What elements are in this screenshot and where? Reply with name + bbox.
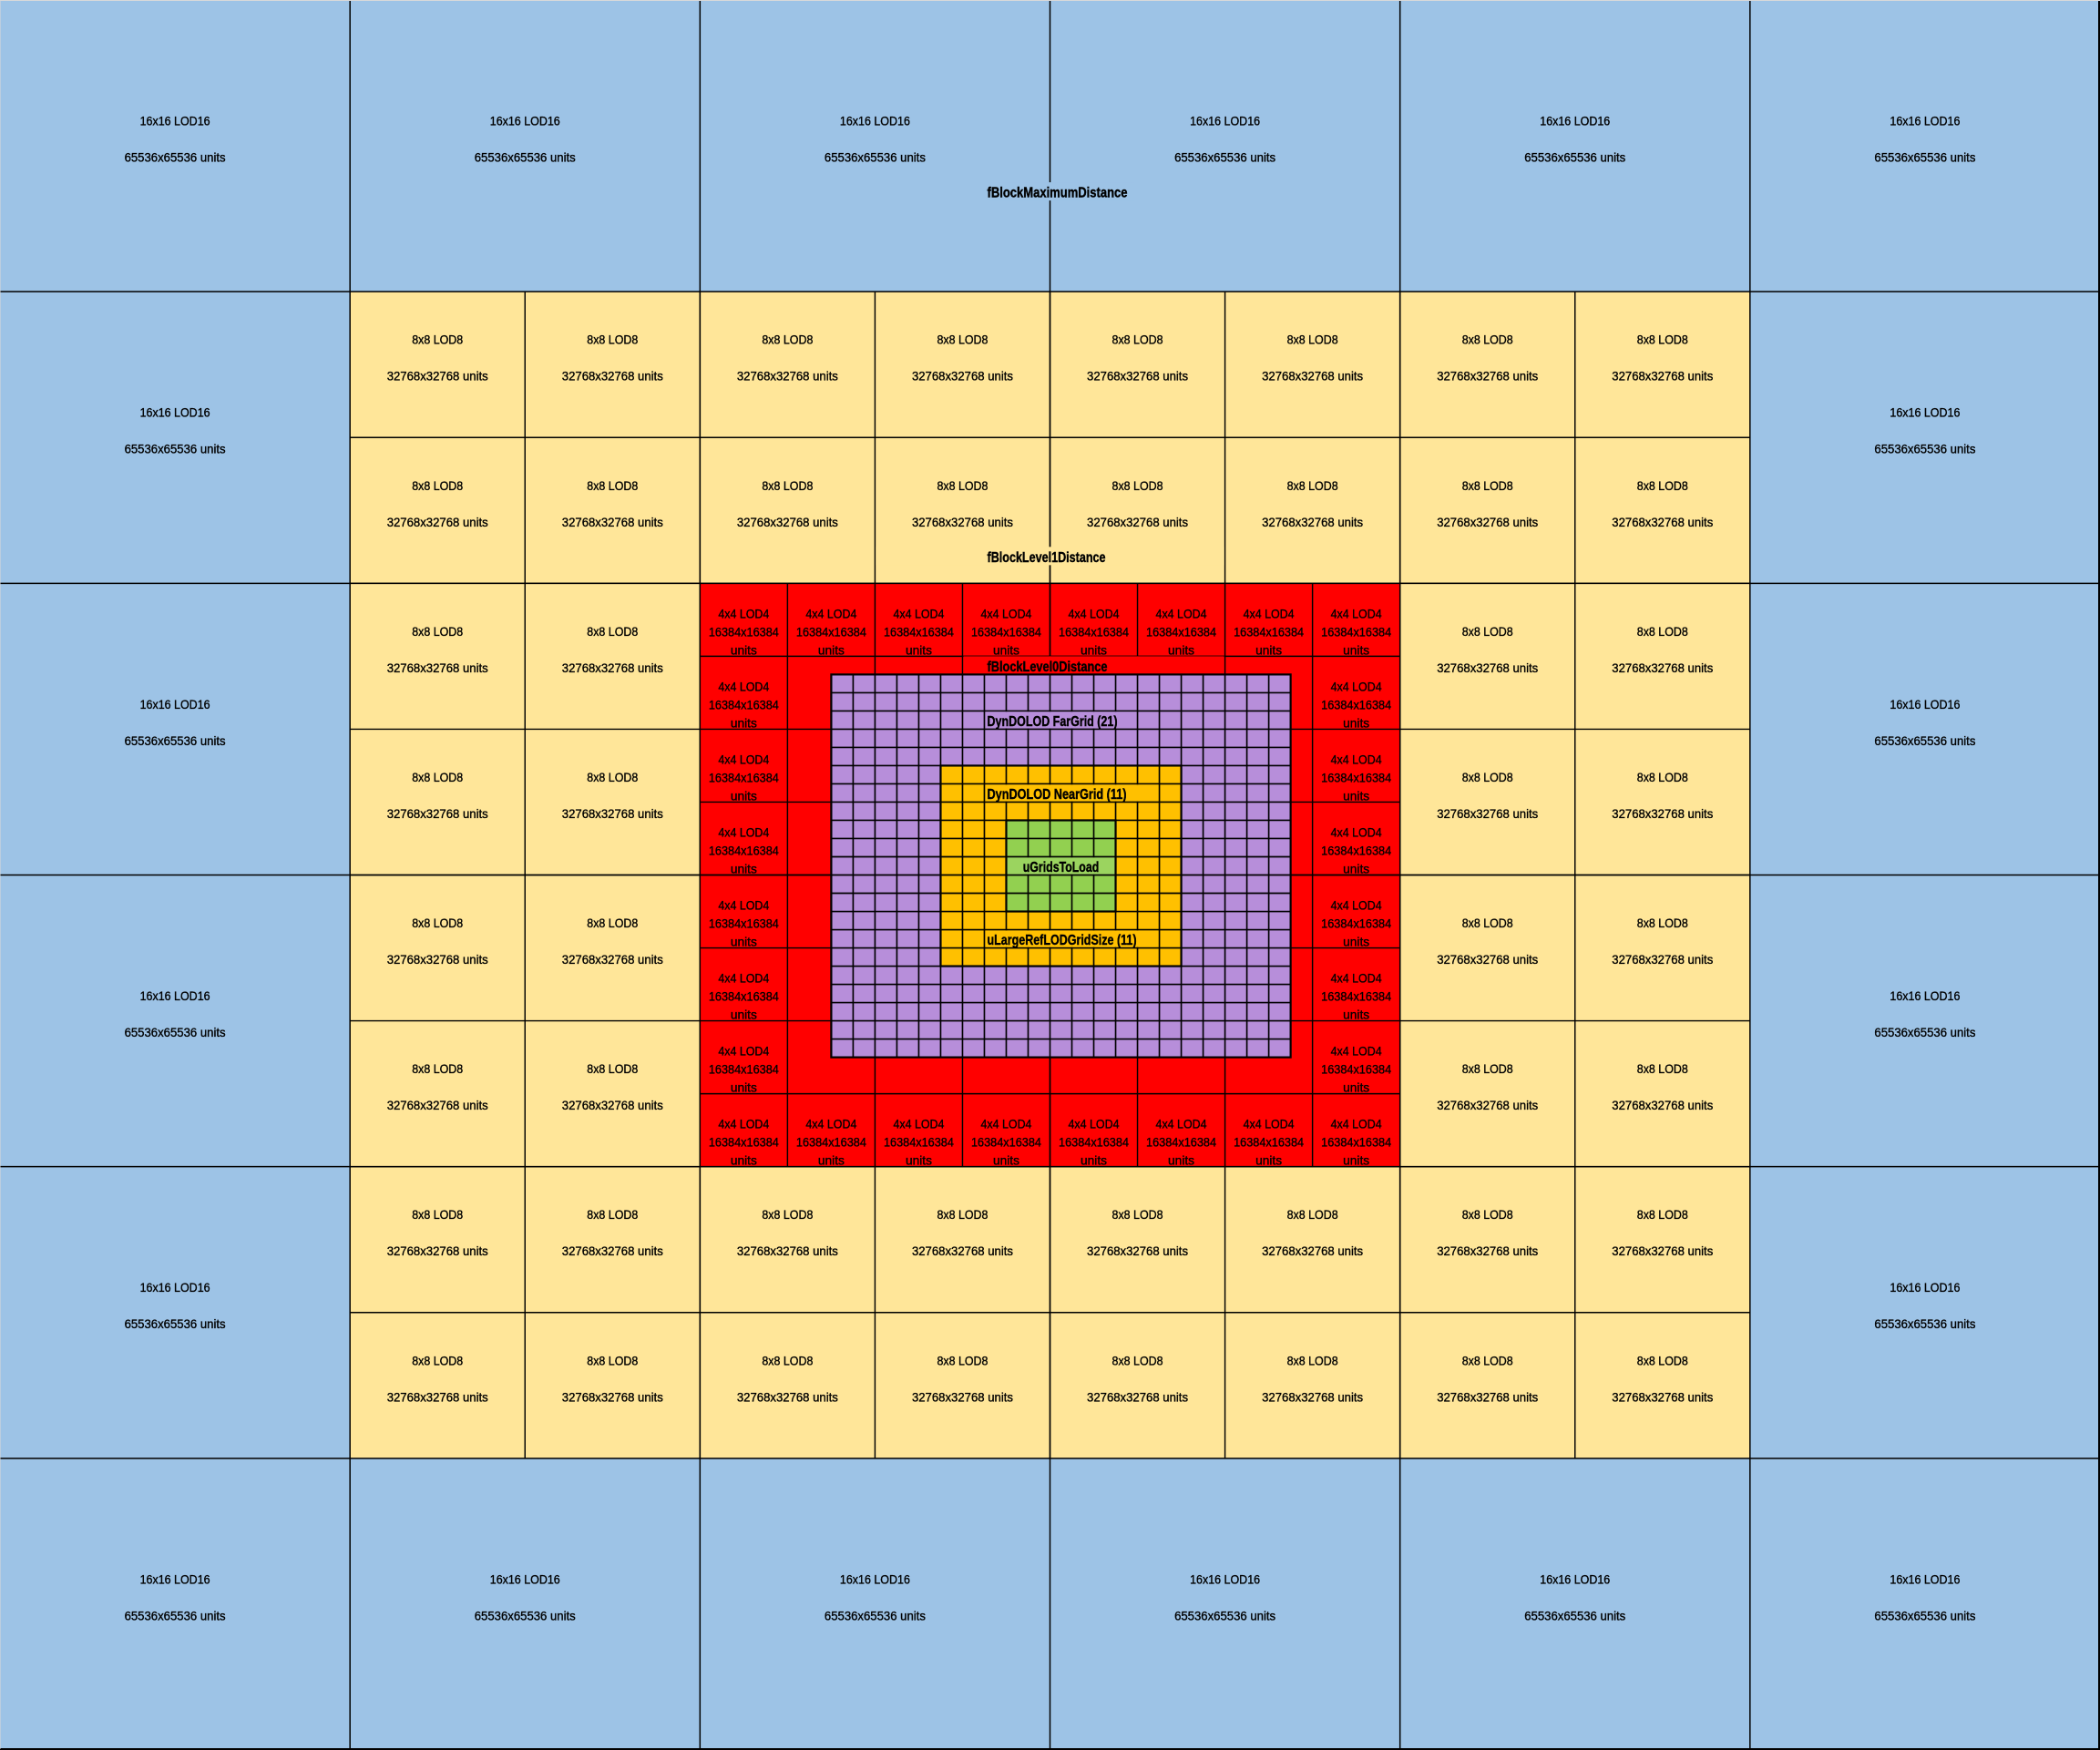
svg-text:8x8 LOD8: 8x8 LOD8 — [412, 1207, 463, 1222]
svg-text:65536x65536 units: 65536x65536 units — [1874, 733, 1975, 748]
svg-text:8x8 LOD8: 8x8 LOD8 — [1462, 1353, 1513, 1367]
svg-text:units: units — [731, 715, 757, 730]
svg-text:8x8 LOD8: 8x8 LOD8 — [937, 478, 988, 493]
svg-text:8x8 LOD8: 8x8 LOD8 — [587, 770, 638, 784]
svg-text:16x16 LOD16: 16x16 LOD16 — [140, 988, 210, 1003]
svg-text:8x8 LOD8: 8x8 LOD8 — [762, 478, 813, 493]
svg-text:4x4 LOD4: 4x4 LOD4 — [1244, 1117, 1295, 1131]
svg-text:units: units — [993, 1153, 1019, 1168]
svg-text:uGridsToLoad: uGridsToLoad — [1023, 860, 1100, 875]
svg-text:32768x32768 units: 32768x32768 units — [1087, 515, 1188, 529]
svg-text:16x16 LOD16: 16x16 LOD16 — [1890, 1571, 1960, 1586]
svg-text:16384x16384: 16384x16384 — [971, 1135, 1041, 1150]
svg-text:units: units — [1343, 642, 1369, 657]
svg-text:32768x32768 units: 32768x32768 units — [1612, 1098, 1713, 1112]
svg-text:8x8 LOD8: 8x8 LOD8 — [762, 333, 813, 347]
svg-text:4x4 LOD4: 4x4 LOD4 — [1331, 1044, 1382, 1059]
svg-text:32768x32768 units: 32768x32768 units — [1087, 369, 1188, 384]
svg-text:32768x32768 units: 32768x32768 units — [1437, 1389, 1538, 1404]
svg-text:32768x32768 units: 32768x32768 units — [737, 515, 838, 529]
svg-text:fBlockLevel0Distance: fBlockLevel0Distance — [988, 660, 1108, 675]
svg-text:65536x65536 units: 65536x65536 units — [1874, 442, 1975, 456]
svg-text:65536x65536 units: 65536x65536 units — [1524, 150, 1625, 165]
svg-text:32768x32768 units: 32768x32768 units — [1437, 1243, 1538, 1258]
svg-text:fBlockMaximumDistance: fBlockMaximumDistance — [988, 186, 1128, 201]
svg-text:8x8 LOD8: 8x8 LOD8 — [1112, 333, 1163, 347]
svg-text:4x4 LOD4: 4x4 LOD4 — [1331, 971, 1382, 986]
svg-text:8x8 LOD8: 8x8 LOD8 — [1462, 478, 1513, 493]
svg-text:65536x65536 units: 65536x65536 units — [125, 733, 226, 748]
svg-text:16384x16384: 16384x16384 — [1234, 624, 1304, 639]
svg-text:4x4 LOD4: 4x4 LOD4 — [980, 606, 1031, 620]
svg-text:32768x32768 units: 32768x32768 units — [1612, 1243, 1713, 1258]
svg-text:8x8 LOD8: 8x8 LOD8 — [1462, 1207, 1513, 1222]
svg-text:32768x32768 units: 32768x32768 units — [387, 806, 488, 821]
svg-text:32768x32768 units: 32768x32768 units — [1612, 952, 1713, 967]
svg-text:65536x65536 units: 65536x65536 units — [1524, 1608, 1625, 1622]
svg-text:4x4 LOD4: 4x4 LOD4 — [1331, 679, 1382, 693]
svg-text:16384x16384: 16384x16384 — [796, 624, 866, 639]
svg-text:16384x16384: 16384x16384 — [1321, 843, 1391, 857]
svg-text:4x4 LOD4: 4x4 LOD4 — [805, 1117, 856, 1131]
svg-text:8x8 LOD8: 8x8 LOD8 — [412, 333, 463, 347]
svg-text:16384x16384: 16384x16384 — [1321, 624, 1391, 639]
svg-text:8x8 LOD8: 8x8 LOD8 — [1462, 1061, 1513, 1076]
svg-text:32768x32768 units: 32768x32768 units — [912, 1389, 1013, 1404]
svg-text:16x16 LOD16: 16x16 LOD16 — [140, 1280, 210, 1295]
svg-text:16x16 LOD16: 16x16 LOD16 — [490, 1571, 560, 1586]
svg-text:units: units — [1343, 1153, 1369, 1168]
svg-text:65536x65536 units: 65536x65536 units — [825, 1608, 926, 1622]
svg-text:8x8 LOD8: 8x8 LOD8 — [1637, 1061, 1688, 1076]
svg-text:65536x65536 units: 65536x65536 units — [1874, 1025, 1975, 1039]
svg-text:units: units — [1343, 861, 1369, 875]
svg-text:16384x16384: 16384x16384 — [884, 1135, 954, 1150]
svg-text:8x8 LOD8: 8x8 LOD8 — [1112, 1353, 1163, 1367]
svg-text:16384x16384: 16384x16384 — [1321, 989, 1391, 1004]
svg-text:16x16 LOD16: 16x16 LOD16 — [1890, 114, 1960, 128]
svg-text:units: units — [1343, 715, 1369, 730]
svg-text:4x4 LOD4: 4x4 LOD4 — [718, 971, 769, 986]
svg-text:32768x32768 units: 32768x32768 units — [387, 369, 488, 384]
svg-text:16x16 LOD16: 16x16 LOD16 — [1890, 988, 1960, 1003]
svg-text:32768x32768 units: 32768x32768 units — [562, 515, 663, 529]
svg-text:65536x65536 units: 65536x65536 units — [125, 1025, 226, 1039]
svg-text:65536x65536 units: 65536x65536 units — [125, 1608, 226, 1622]
svg-text:32768x32768 units: 32768x32768 units — [387, 1098, 488, 1112]
svg-text:4x4 LOD4: 4x4 LOD4 — [1069, 1117, 1120, 1131]
svg-text:32768x32768 units: 32768x32768 units — [387, 952, 488, 967]
svg-text:units: units — [1343, 1008, 1369, 1022]
svg-text:units: units — [731, 1080, 757, 1095]
svg-text:16384x16384: 16384x16384 — [796, 1135, 866, 1150]
svg-text:units: units — [1168, 1153, 1194, 1168]
svg-text:8x8 LOD8: 8x8 LOD8 — [412, 1061, 463, 1076]
svg-text:32768x32768 units: 32768x32768 units — [1262, 1243, 1363, 1258]
svg-text:DynDOLOD FarGrid (21): DynDOLOD FarGrid (21) — [988, 714, 1118, 730]
svg-text:8x8 LOD8: 8x8 LOD8 — [937, 333, 988, 347]
svg-text:32768x32768 units: 32768x32768 units — [1437, 1098, 1538, 1112]
svg-text:8x8 LOD8: 8x8 LOD8 — [1637, 770, 1688, 784]
svg-text:16384x16384: 16384x16384 — [1321, 916, 1391, 931]
svg-text:8x8 LOD8: 8x8 LOD8 — [587, 478, 638, 493]
svg-text:8x8 LOD8: 8x8 LOD8 — [587, 624, 638, 639]
svg-text:32768x32768 units: 32768x32768 units — [1612, 660, 1713, 675]
svg-text:16384x16384: 16384x16384 — [709, 843, 779, 857]
svg-text:8x8 LOD8: 8x8 LOD8 — [1287, 1353, 1338, 1367]
svg-text:32768x32768 units: 32768x32768 units — [737, 369, 838, 384]
svg-text:32768x32768 units: 32768x32768 units — [1262, 1389, 1363, 1404]
svg-text:8x8 LOD8: 8x8 LOD8 — [587, 1061, 638, 1076]
svg-text:8x8 LOD8: 8x8 LOD8 — [587, 1353, 638, 1367]
svg-text:8x8 LOD8: 8x8 LOD8 — [1637, 624, 1688, 639]
svg-text:units: units — [818, 1153, 845, 1168]
svg-text:fBlockLevel1Distance: fBlockLevel1Distance — [988, 550, 1106, 566]
svg-text:16384x16384: 16384x16384 — [1234, 1135, 1304, 1150]
svg-text:32768x32768 units: 32768x32768 units — [912, 369, 1013, 384]
svg-text:8x8 LOD8: 8x8 LOD8 — [412, 916, 463, 930]
svg-text:16384x16384: 16384x16384 — [1321, 1062, 1391, 1077]
svg-text:8x8 LOD8: 8x8 LOD8 — [1462, 333, 1513, 347]
svg-text:4x4 LOD4: 4x4 LOD4 — [893, 606, 944, 620]
svg-text:4x4 LOD4: 4x4 LOD4 — [1156, 1117, 1207, 1131]
svg-text:8x8 LOD8: 8x8 LOD8 — [762, 1353, 813, 1367]
svg-text:65536x65536 units: 65536x65536 units — [825, 150, 926, 165]
svg-text:32768x32768 units: 32768x32768 units — [562, 1243, 663, 1258]
svg-text:32768x32768 units: 32768x32768 units — [562, 952, 663, 967]
svg-text:8x8 LOD8: 8x8 LOD8 — [1637, 333, 1688, 347]
svg-text:16384x16384: 16384x16384 — [709, 1135, 779, 1150]
svg-text:32768x32768 units: 32768x32768 units — [562, 806, 663, 821]
svg-text:16384x16384: 16384x16384 — [1059, 624, 1129, 639]
svg-text:16384x16384: 16384x16384 — [1321, 770, 1391, 784]
svg-text:32768x32768 units: 32768x32768 units — [1612, 1389, 1713, 1404]
svg-text:units: units — [731, 788, 757, 803]
svg-text:4x4 LOD4: 4x4 LOD4 — [718, 824, 769, 839]
svg-text:32768x32768 units: 32768x32768 units — [1087, 1389, 1188, 1404]
svg-text:units: units — [731, 1008, 757, 1022]
svg-text:4x4 LOD4: 4x4 LOD4 — [1244, 606, 1295, 620]
svg-text:16384x16384: 16384x16384 — [709, 697, 779, 711]
svg-text:16384x16384: 16384x16384 — [1059, 1135, 1129, 1150]
svg-text:units: units — [1255, 642, 1282, 657]
svg-text:4x4 LOD4: 4x4 LOD4 — [1069, 606, 1120, 620]
svg-text:32768x32768 units: 32768x32768 units — [912, 515, 1013, 529]
svg-text:8x8 LOD8: 8x8 LOD8 — [412, 1353, 463, 1367]
svg-text:4x4 LOD4: 4x4 LOD4 — [718, 898, 769, 913]
svg-text:8x8 LOD8: 8x8 LOD8 — [1112, 1207, 1163, 1222]
svg-text:16x16 LOD16: 16x16 LOD16 — [1190, 1571, 1260, 1586]
svg-text:16x16 LOD16: 16x16 LOD16 — [490, 114, 560, 128]
svg-text:16x16 LOD16: 16x16 LOD16 — [1890, 697, 1960, 711]
svg-text:32768x32768 units: 32768x32768 units — [1612, 369, 1713, 384]
svg-text:8x8 LOD8: 8x8 LOD8 — [1637, 1207, 1688, 1222]
svg-text:4x4 LOD4: 4x4 LOD4 — [718, 1117, 769, 1131]
svg-text:units: units — [1343, 788, 1369, 803]
svg-text:32768x32768 units: 32768x32768 units — [1437, 952, 1538, 967]
svg-text:16384x16384: 16384x16384 — [1321, 1135, 1391, 1150]
svg-text:4x4 LOD4: 4x4 LOD4 — [718, 752, 769, 766]
svg-text:16x16 LOD16: 16x16 LOD16 — [1540, 114, 1610, 128]
svg-text:16384x16384: 16384x16384 — [884, 624, 954, 639]
svg-text:8x8 LOD8: 8x8 LOD8 — [1637, 1353, 1688, 1367]
svg-text:16x16 LOD16: 16x16 LOD16 — [840, 1571, 910, 1586]
svg-text:DynDOLOD NearGrid (11): DynDOLOD NearGrid (11) — [988, 787, 1127, 803]
svg-text:16384x16384: 16384x16384 — [709, 989, 779, 1004]
svg-text:units: units — [906, 1153, 932, 1168]
svg-text:4x4 LOD4: 4x4 LOD4 — [1331, 1117, 1382, 1131]
svg-text:units: units — [731, 861, 757, 875]
svg-text:32768x32768 units: 32768x32768 units — [1437, 660, 1538, 675]
svg-text:32768x32768 units: 32768x32768 units — [1087, 1243, 1188, 1258]
svg-text:16x16 LOD16: 16x16 LOD16 — [1540, 1571, 1610, 1586]
svg-text:8x8 LOD8: 8x8 LOD8 — [937, 1353, 988, 1367]
svg-text:8x8 LOD8: 8x8 LOD8 — [587, 1207, 638, 1222]
svg-text:65536x65536 units: 65536x65536 units — [1174, 150, 1275, 165]
svg-text:4x4 LOD4: 4x4 LOD4 — [980, 1117, 1031, 1131]
svg-text:65536x65536 units: 65536x65536 units — [125, 442, 226, 456]
svg-text:32768x32768 units: 32768x32768 units — [387, 1243, 488, 1258]
svg-text:4x4 LOD4: 4x4 LOD4 — [1331, 752, 1382, 766]
svg-text:16x16 LOD16: 16x16 LOD16 — [140, 1571, 210, 1586]
svg-text:32768x32768 units: 32768x32768 units — [1437, 806, 1538, 821]
svg-text:32768x32768 units: 32768x32768 units — [387, 1389, 488, 1404]
svg-text:65536x65536 units: 65536x65536 units — [1174, 1608, 1275, 1622]
svg-text:8x8 LOD8: 8x8 LOD8 — [937, 1207, 988, 1222]
svg-text:units: units — [1081, 1153, 1107, 1168]
svg-text:32768x32768 units: 32768x32768 units — [737, 1243, 838, 1258]
svg-text:8x8 LOD8: 8x8 LOD8 — [587, 916, 638, 930]
svg-text:units: units — [818, 642, 845, 657]
svg-text:8x8 LOD8: 8x8 LOD8 — [1637, 478, 1688, 493]
svg-text:16384x16384: 16384x16384 — [1321, 697, 1391, 711]
svg-text:units: units — [1343, 935, 1369, 949]
svg-text:4x4 LOD4: 4x4 LOD4 — [1331, 606, 1382, 620]
svg-text:4x4 LOD4: 4x4 LOD4 — [1331, 824, 1382, 839]
svg-text:16384x16384: 16384x16384 — [709, 1062, 779, 1077]
svg-text:8x8 LOD8: 8x8 LOD8 — [1462, 624, 1513, 639]
svg-text:units: units — [1255, 1153, 1282, 1168]
svg-text:4x4 LOD4: 4x4 LOD4 — [1331, 898, 1382, 913]
svg-text:units: units — [731, 935, 757, 949]
svg-text:uLargeRefLODGridSize (11): uLargeRefLODGridSize (11) — [988, 933, 1137, 948]
svg-text:32768x32768 units: 32768x32768 units — [1612, 515, 1713, 529]
svg-text:32768x32768 units: 32768x32768 units — [1437, 515, 1538, 529]
svg-text:16384x16384: 16384x16384 — [1146, 624, 1216, 639]
svg-text:16x16 LOD16: 16x16 LOD16 — [1890, 405, 1960, 420]
svg-text:32768x32768 units: 32768x32768 units — [1262, 369, 1363, 384]
svg-text:units: units — [731, 642, 757, 657]
svg-text:8x8 LOD8: 8x8 LOD8 — [1462, 770, 1513, 784]
svg-text:16x16 LOD16: 16x16 LOD16 — [840, 114, 910, 128]
svg-text:65536x65536 units: 65536x65536 units — [125, 150, 226, 165]
svg-text:8x8 LOD8: 8x8 LOD8 — [762, 1207, 813, 1222]
svg-text:32768x32768 units: 32768x32768 units — [1437, 369, 1538, 384]
svg-text:32768x32768 units: 32768x32768 units — [562, 1389, 663, 1404]
svg-text:8x8 LOD8: 8x8 LOD8 — [412, 478, 463, 493]
svg-text:16x16 LOD16: 16x16 LOD16 — [140, 405, 210, 420]
svg-text:units: units — [1081, 642, 1107, 657]
svg-text:4x4 LOD4: 4x4 LOD4 — [718, 606, 769, 620]
svg-text:8x8 LOD8: 8x8 LOD8 — [587, 333, 638, 347]
svg-text:4x4 LOD4: 4x4 LOD4 — [893, 1117, 944, 1131]
svg-text:32768x32768 units: 32768x32768 units — [387, 515, 488, 529]
svg-text:65536x65536 units: 65536x65536 units — [1874, 1608, 1975, 1622]
svg-text:16x16 LOD16: 16x16 LOD16 — [140, 697, 210, 711]
svg-text:16x16 LOD16: 16x16 LOD16 — [140, 114, 210, 128]
svg-text:8x8 LOD8: 8x8 LOD8 — [1287, 1207, 1338, 1222]
svg-text:16384x16384: 16384x16384 — [971, 624, 1041, 639]
svg-text:32768x32768 units: 32768x32768 units — [562, 660, 663, 675]
svg-text:8x8 LOD8: 8x8 LOD8 — [1462, 916, 1513, 930]
svg-text:4x4 LOD4: 4x4 LOD4 — [1156, 606, 1207, 620]
svg-text:4x4 LOD4: 4x4 LOD4 — [805, 606, 856, 620]
svg-text:4x4 LOD4: 4x4 LOD4 — [718, 679, 769, 693]
svg-text:8x8 LOD8: 8x8 LOD8 — [412, 624, 463, 639]
svg-text:8x8 LOD8: 8x8 LOD8 — [1287, 478, 1338, 493]
svg-text:32768x32768 units: 32768x32768 units — [737, 1389, 838, 1404]
svg-text:8x8 LOD8: 8x8 LOD8 — [1112, 478, 1163, 493]
svg-text:32768x32768 units: 32768x32768 units — [912, 1243, 1013, 1258]
svg-text:65536x65536 units: 65536x65536 units — [475, 150, 576, 165]
svg-text:8x8 LOD8: 8x8 LOD8 — [412, 770, 463, 784]
svg-text:units: units — [906, 642, 932, 657]
svg-text:16384x16384: 16384x16384 — [709, 624, 779, 639]
svg-text:units: units — [993, 642, 1019, 657]
svg-text:16384x16384: 16384x16384 — [709, 916, 779, 931]
svg-text:32768x32768 units: 32768x32768 units — [562, 1098, 663, 1112]
svg-text:16384x16384: 16384x16384 — [709, 770, 779, 784]
svg-text:16x16 LOD16: 16x16 LOD16 — [1890, 1280, 1960, 1295]
svg-text:65536x65536 units: 65536x65536 units — [1874, 150, 1975, 165]
svg-text:32768x32768 units: 32768x32768 units — [562, 369, 663, 384]
svg-text:units: units — [1168, 642, 1194, 657]
svg-text:8x8 LOD8: 8x8 LOD8 — [1287, 333, 1338, 347]
svg-text:32768x32768 units: 32768x32768 units — [1612, 806, 1713, 821]
svg-text:units: units — [731, 1153, 757, 1168]
svg-text:32768x32768 units: 32768x32768 units — [387, 660, 488, 675]
svg-text:65536x65536 units: 65536x65536 units — [1874, 1316, 1975, 1331]
svg-text:4x4 LOD4: 4x4 LOD4 — [718, 1044, 769, 1059]
svg-text:65536x65536 units: 65536x65536 units — [125, 1316, 226, 1331]
svg-text:units: units — [1343, 1080, 1369, 1095]
svg-text:16x16 LOD16: 16x16 LOD16 — [1190, 114, 1260, 128]
svg-text:16384x16384: 16384x16384 — [1146, 1135, 1216, 1150]
svg-text:8x8 LOD8: 8x8 LOD8 — [1637, 916, 1688, 930]
svg-text:32768x32768 units: 32768x32768 units — [1262, 515, 1363, 529]
svg-text:65536x65536 units: 65536x65536 units — [475, 1608, 576, 1622]
